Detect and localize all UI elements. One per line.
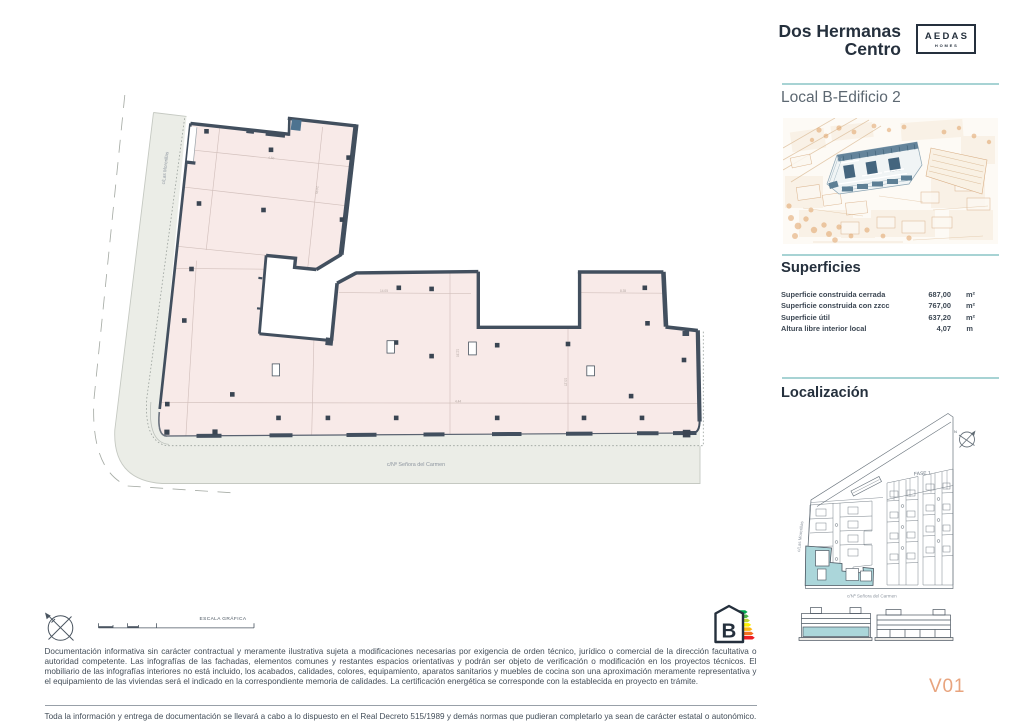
svg-text:N: N [954,429,957,434]
svg-text:c/Las Morerillas: c/Las Morerillas [796,520,804,552]
svg-text:8.35: 8.35 [620,289,626,293]
svg-text:B: B [722,620,737,643]
svg-text:10.15: 10.15 [564,378,568,386]
svg-text:FASE 1: FASE 1 [914,470,932,477]
svg-text:ESCALA GRÁFICA: ESCALA GRÁFICA [200,615,247,622]
svg-text:12.30: 12.30 [456,349,460,357]
svg-text:c/Nª Señora del Carmen: c/Nª Señora del Carmen [387,462,445,468]
svg-text:4.50: 4.50 [268,156,275,161]
svg-text:4.44: 4.44 [455,399,461,403]
svg-text:c/Nª Señora del Carmen: c/Nª Señora del Carmen [847,594,897,599]
svg-text:14.05: 14.05 [380,289,388,293]
